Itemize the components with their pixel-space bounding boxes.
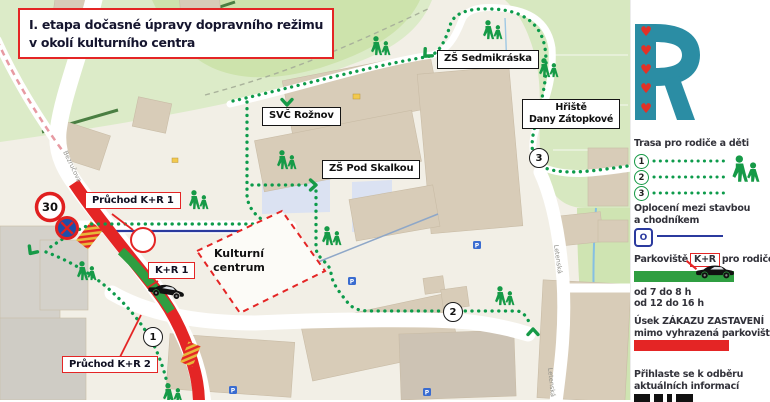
label-kulturni-centrum: Kulturní centrum <box>197 247 281 275</box>
route-marker-3: 3 <box>529 148 549 168</box>
label-zs-sedmikraska: ZŠ Sedmikráska <box>437 50 539 69</box>
fence-line-swatch <box>657 235 723 237</box>
heart-icon: ♥ <box>640 80 652 99</box>
no-stopping-sign-icon <box>57 218 78 239</box>
ban-line1: Úsek ZÁKAZU ZASTAVENÍ <box>634 316 770 328</box>
heart-icon: ♥ <box>640 61 652 80</box>
speed-limit-sign: 30 <box>37 194 64 221</box>
legend-ban-text: Úsek ZÁKAZU ZASTAVENÍ mimo vyhrazená par… <box>634 316 770 339</box>
route-marker-1: 1 <box>143 327 163 347</box>
hriste-line2: Dany Zátopkové <box>529 114 613 126</box>
heart-icon: ♥ <box>640 23 652 42</box>
route-marker-2: 2 <box>443 302 463 322</box>
parking-prefix: Parkoviště <box>634 254 688 266</box>
legend-time1: od 7 do 8 h <box>634 287 691 299</box>
passage-marker-circle <box>130 227 156 253</box>
qr-code-partial <box>634 394 693 402</box>
kulturni-line2: centrum <box>197 261 281 275</box>
subscribe-line2: aktuálních informací <box>634 381 743 393</box>
logo-hearts: ♥ ♥ ♥ ♥ ♥ <box>637 23 655 119</box>
svg-text:30: 30 <box>42 200 58 214</box>
hriste-line1: Hřiště <box>529 102 613 114</box>
qr-block <box>634 394 650 402</box>
title-line2: v okolí kulturního centra <box>29 34 323 52</box>
legend-route-3: 3 <box>634 186 649 201</box>
parking-p-icon: P <box>475 243 480 250</box>
label-hriste: Hřiště Dany Zátopkové <box>522 99 620 129</box>
legend-fence-text: Oplocení mezi stavbou a chodníkem <box>634 203 750 226</box>
legend-route-1: 1 <box>634 154 649 169</box>
legend-route-title: Trasa pro rodiče a děti <box>634 138 749 150</box>
fence-o-symbol: O <box>634 228 653 247</box>
parent-child-walking-icon <box>731 155 763 183</box>
legend-time2: od 12 do 16 h <box>634 298 704 310</box>
legend-subscribe-text: Přihlaste se k odběru aktuálních informa… <box>634 369 743 392</box>
page-title: I. etapa dočasné úpravy dopravního režim… <box>18 8 334 59</box>
parking-p-icon: P <box>350 279 355 286</box>
parking-p-icon: P <box>231 388 236 395</box>
callout-pruchod-kr1: Průchod K+R 1 <box>85 192 181 209</box>
fence-line2: a chodníkem <box>634 215 750 227</box>
qr-block <box>667 394 672 402</box>
title-line1: I. etapa dočasné úpravy dopravního režim… <box>29 16 323 34</box>
label-svc-roznov: SVČ Rožnov <box>262 107 341 126</box>
fence-line1: Oplocení mezi stavbou <box>634 203 750 215</box>
qr-block <box>654 394 663 402</box>
legend-dotted-3 <box>652 190 728 196</box>
heart-icon: ♥ <box>640 100 652 119</box>
label-zs-pod-skalkou: ZŠ Pod Skalkou <box>322 160 420 179</box>
legend-route-2: 2 <box>634 170 649 185</box>
kulturni-line1: Kulturní <box>197 247 281 261</box>
qr-block <box>676 394 693 402</box>
legend-dotted-2 <box>652 174 728 180</box>
legend-sidebar: ♥ ♥ ♥ ♥ ♥ Trasa pro rodiče a děti 1 2 3 … <box>630 0 770 400</box>
parking-p-icon: P <box>425 390 430 397</box>
ban-swatch <box>634 340 729 351</box>
legend-dotted-1 <box>652 158 728 164</box>
subscribe-line1: Přihlaste se k odběru <box>634 369 743 381</box>
traffic-plan-map-poster: { "title": { "line1": "I. etapa dočasné … <box>0 0 770 400</box>
map-canvas: Bezručova Letenská Letenská P P P P 30 <box>0 0 630 400</box>
ban-line2: mimo vyhrazená parkoviště <box>634 328 770 340</box>
callout-pruchod-kr2: Průchod K+R 2 <box>62 356 158 373</box>
heart-icon: ♥ <box>640 42 652 61</box>
callout-kr1: K+R 1 <box>148 262 195 279</box>
car-side-icon <box>695 262 735 279</box>
